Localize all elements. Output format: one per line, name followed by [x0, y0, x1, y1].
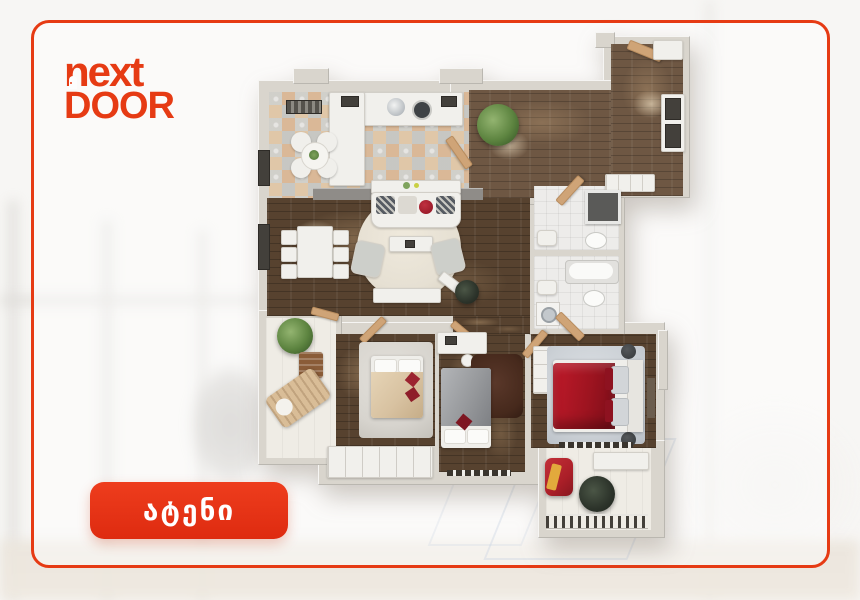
- balcony-left-plant: [277, 318, 313, 354]
- dining-chair: [333, 264, 349, 279]
- wall-bump-top2: [439, 68, 483, 84]
- wall-bump-top1: [293, 68, 329, 84]
- black-plant: [455, 280, 479, 304]
- location-badge: ატენი: [90, 482, 288, 539]
- bath1-sink: [537, 230, 557, 246]
- balcony-right-plant: [579, 476, 615, 512]
- kitchen-column: [387, 98, 405, 116]
- wardrobe-row: [327, 446, 433, 478]
- door-icon: [69, 76, 77, 89]
- entry-closet-slot: [665, 98, 681, 120]
- window-west-1: [258, 150, 270, 186]
- master-cushion-red: [605, 400, 613, 422]
- lounger-cushion: [272, 395, 296, 419]
- balcony-railing: [546, 514, 648, 529]
- yellow-throw: [546, 463, 562, 491]
- master-side-table: [621, 344, 636, 359]
- console-plant: [403, 182, 410, 189]
- kitchen-table: [291, 132, 337, 178]
- sofa-cushion: [376, 196, 395, 214]
- dining-chair: [333, 230, 349, 245]
- dining-chair: [281, 247, 297, 262]
- bath2-sink: [537, 280, 557, 295]
- desk-laptop: [445, 336, 457, 345]
- brand-logo: next DOOR: [64, 56, 174, 125]
- door-knob-icon: [70, 82, 72, 84]
- bedroom2-window: [447, 470, 511, 476]
- master-cushion-red: [605, 368, 613, 390]
- entry-cabinet-top: [653, 40, 683, 60]
- washing-machine-door: [541, 307, 557, 323]
- sofa-cushion: [436, 196, 455, 214]
- bed1: [371, 356, 423, 418]
- bed1-pillow: [374, 359, 397, 373]
- wall-bump-master-right: [658, 330, 668, 390]
- ac-vent: [286, 100, 322, 114]
- bed2-pillow: [467, 429, 489, 444]
- kitchen-stove: [441, 96, 457, 107]
- red-armchair: [545, 458, 573, 496]
- master-pillow: [611, 366, 629, 394]
- master-pillow: [611, 398, 629, 426]
- window-west-2: [258, 224, 270, 270]
- location-badge-label: ატენი: [143, 494, 235, 527]
- dining-chair: [281, 230, 297, 245]
- tv-console: [373, 288, 441, 303]
- sofa-cushion-red: [419, 200, 433, 214]
- table-plant: [309, 150, 319, 160]
- master-bed: [553, 360, 643, 432]
- bathtub-inner: [569, 263, 613, 279]
- console-plant: [414, 183, 419, 188]
- bed2: [441, 368, 491, 448]
- bed1-pillow: [398, 359, 421, 373]
- window-bench: [647, 378, 655, 418]
- building: [253, 30, 693, 545]
- page: { "brand": { "line1": "next", "line2": "…: [0, 0, 860, 600]
- dining-table: [297, 226, 333, 278]
- sofa-cushion: [398, 196, 417, 214]
- balcony-bench: [593, 452, 649, 470]
- toilet: [583, 290, 605, 307]
- dining-chair: [333, 247, 349, 262]
- master-headboard: [627, 360, 643, 432]
- coffee-table-item: [405, 240, 415, 248]
- master-window: [559, 442, 633, 448]
- bed2-pillow: [444, 429, 466, 444]
- tall-plant: [477, 104, 519, 146]
- kitchen-sink: [412, 100, 432, 120]
- dining-chair: [281, 264, 297, 279]
- entry-mirror: [665, 124, 681, 148]
- shower: [585, 190, 621, 224]
- toilet: [585, 232, 607, 249]
- kitchen-appliance: [341, 96, 359, 107]
- floor-plan: [253, 30, 693, 545]
